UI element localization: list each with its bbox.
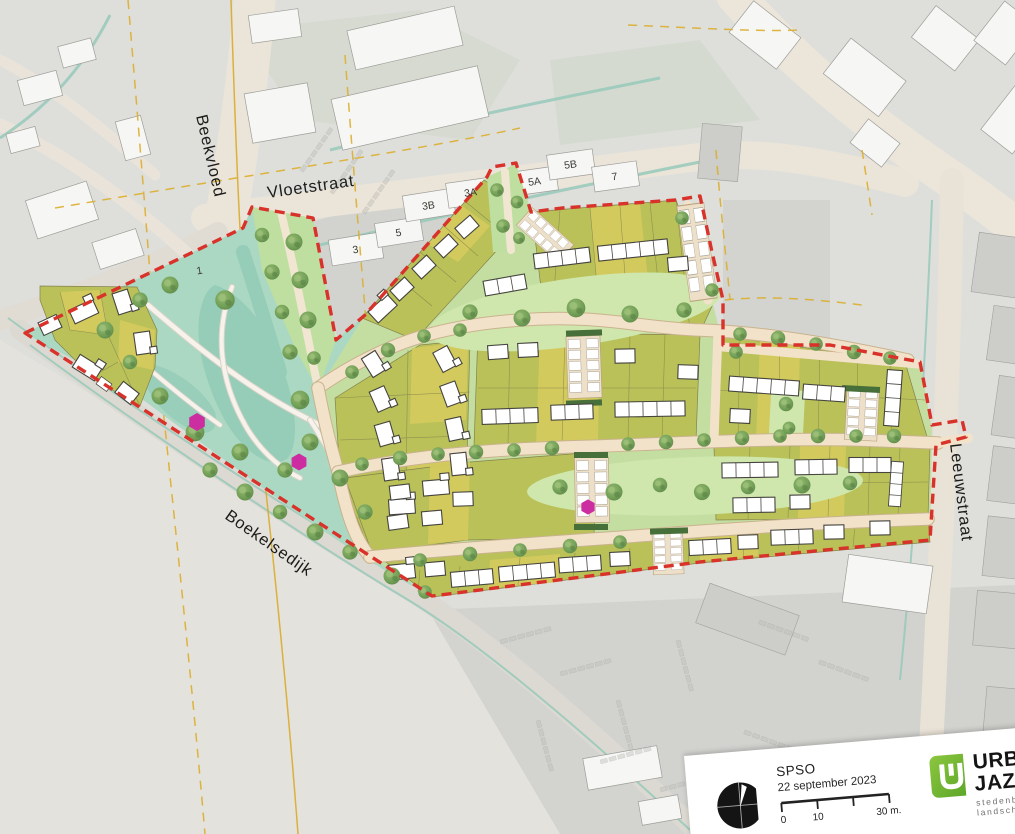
scale-bar: 0 10 30 m. xyxy=(779,788,911,825)
scale-tick-30: 30 m. xyxy=(876,805,902,818)
north-arrow xyxy=(712,778,759,833)
scale-tick-0: 0 xyxy=(780,815,787,825)
masterplan-map: Beekvloed Vloetstraat Boekelsedijk Leeuw… xyxy=(0,0,1015,834)
scale-tick-10: 10 xyxy=(812,812,824,824)
urban-jazz-logo-icon xyxy=(927,753,966,800)
plan-meta: SPSO 22 september 2023 0 10 30 m. xyxy=(776,753,911,825)
house-number-5B: 5B xyxy=(563,158,577,172)
house-number-3A: 3A xyxy=(463,186,477,200)
urban-jazz-logo-name: URBAN JAZZ xyxy=(972,742,1015,795)
map-canvas: Beekvloed Vloetstraat Boekelsedijk Leeuw… xyxy=(0,0,1015,834)
urban-jazz-logo: URBAN JAZZ stedenbouw & landschap xyxy=(927,742,1015,821)
house-number-5A: 5A xyxy=(527,175,541,189)
house-number-3B: 3B xyxy=(421,199,436,213)
